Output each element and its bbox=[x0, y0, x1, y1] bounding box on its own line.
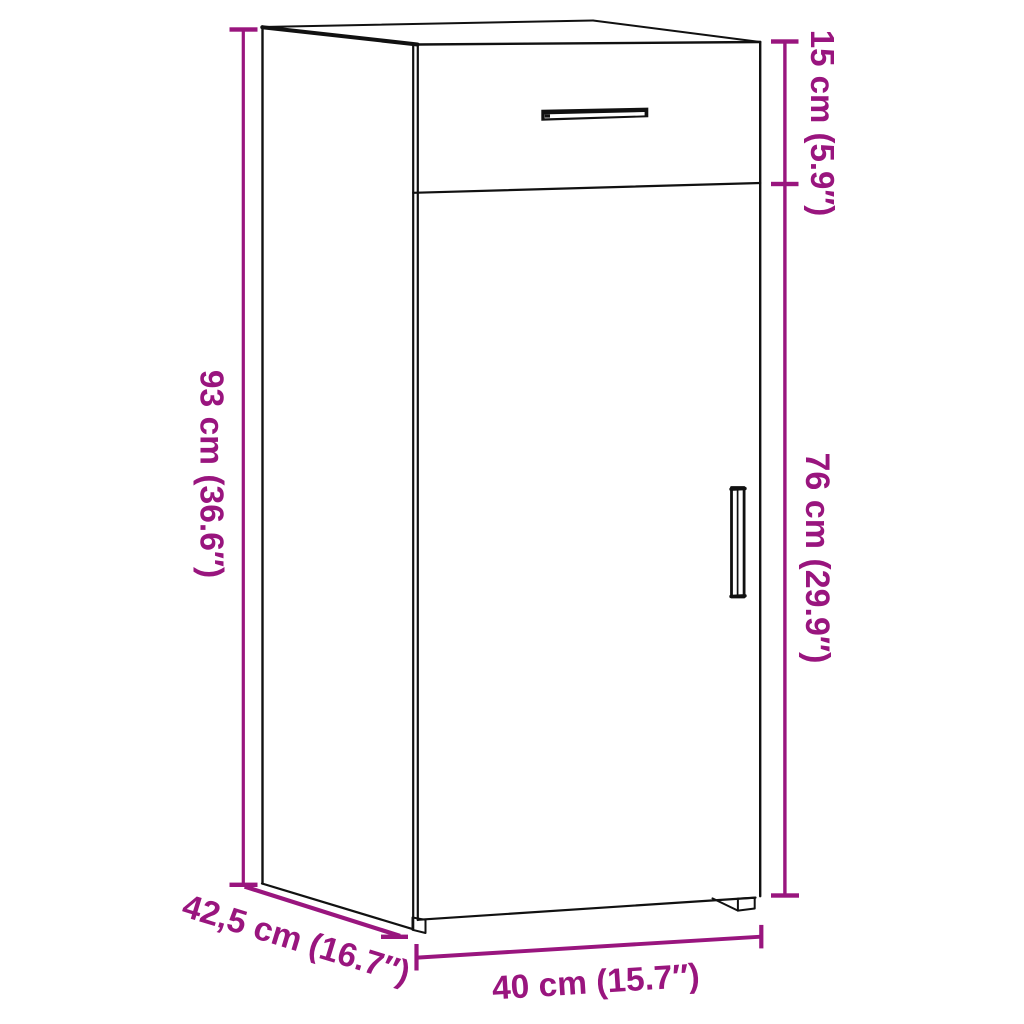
svg-text:15 cm (5.9″): 15 cm (5.9″) bbox=[804, 30, 841, 216]
svg-text:76 cm (29.9″): 76 cm (29.9″) bbox=[798, 453, 836, 664]
svg-text:93 cm (36.6″): 93 cm (36.6″) bbox=[193, 370, 230, 578]
